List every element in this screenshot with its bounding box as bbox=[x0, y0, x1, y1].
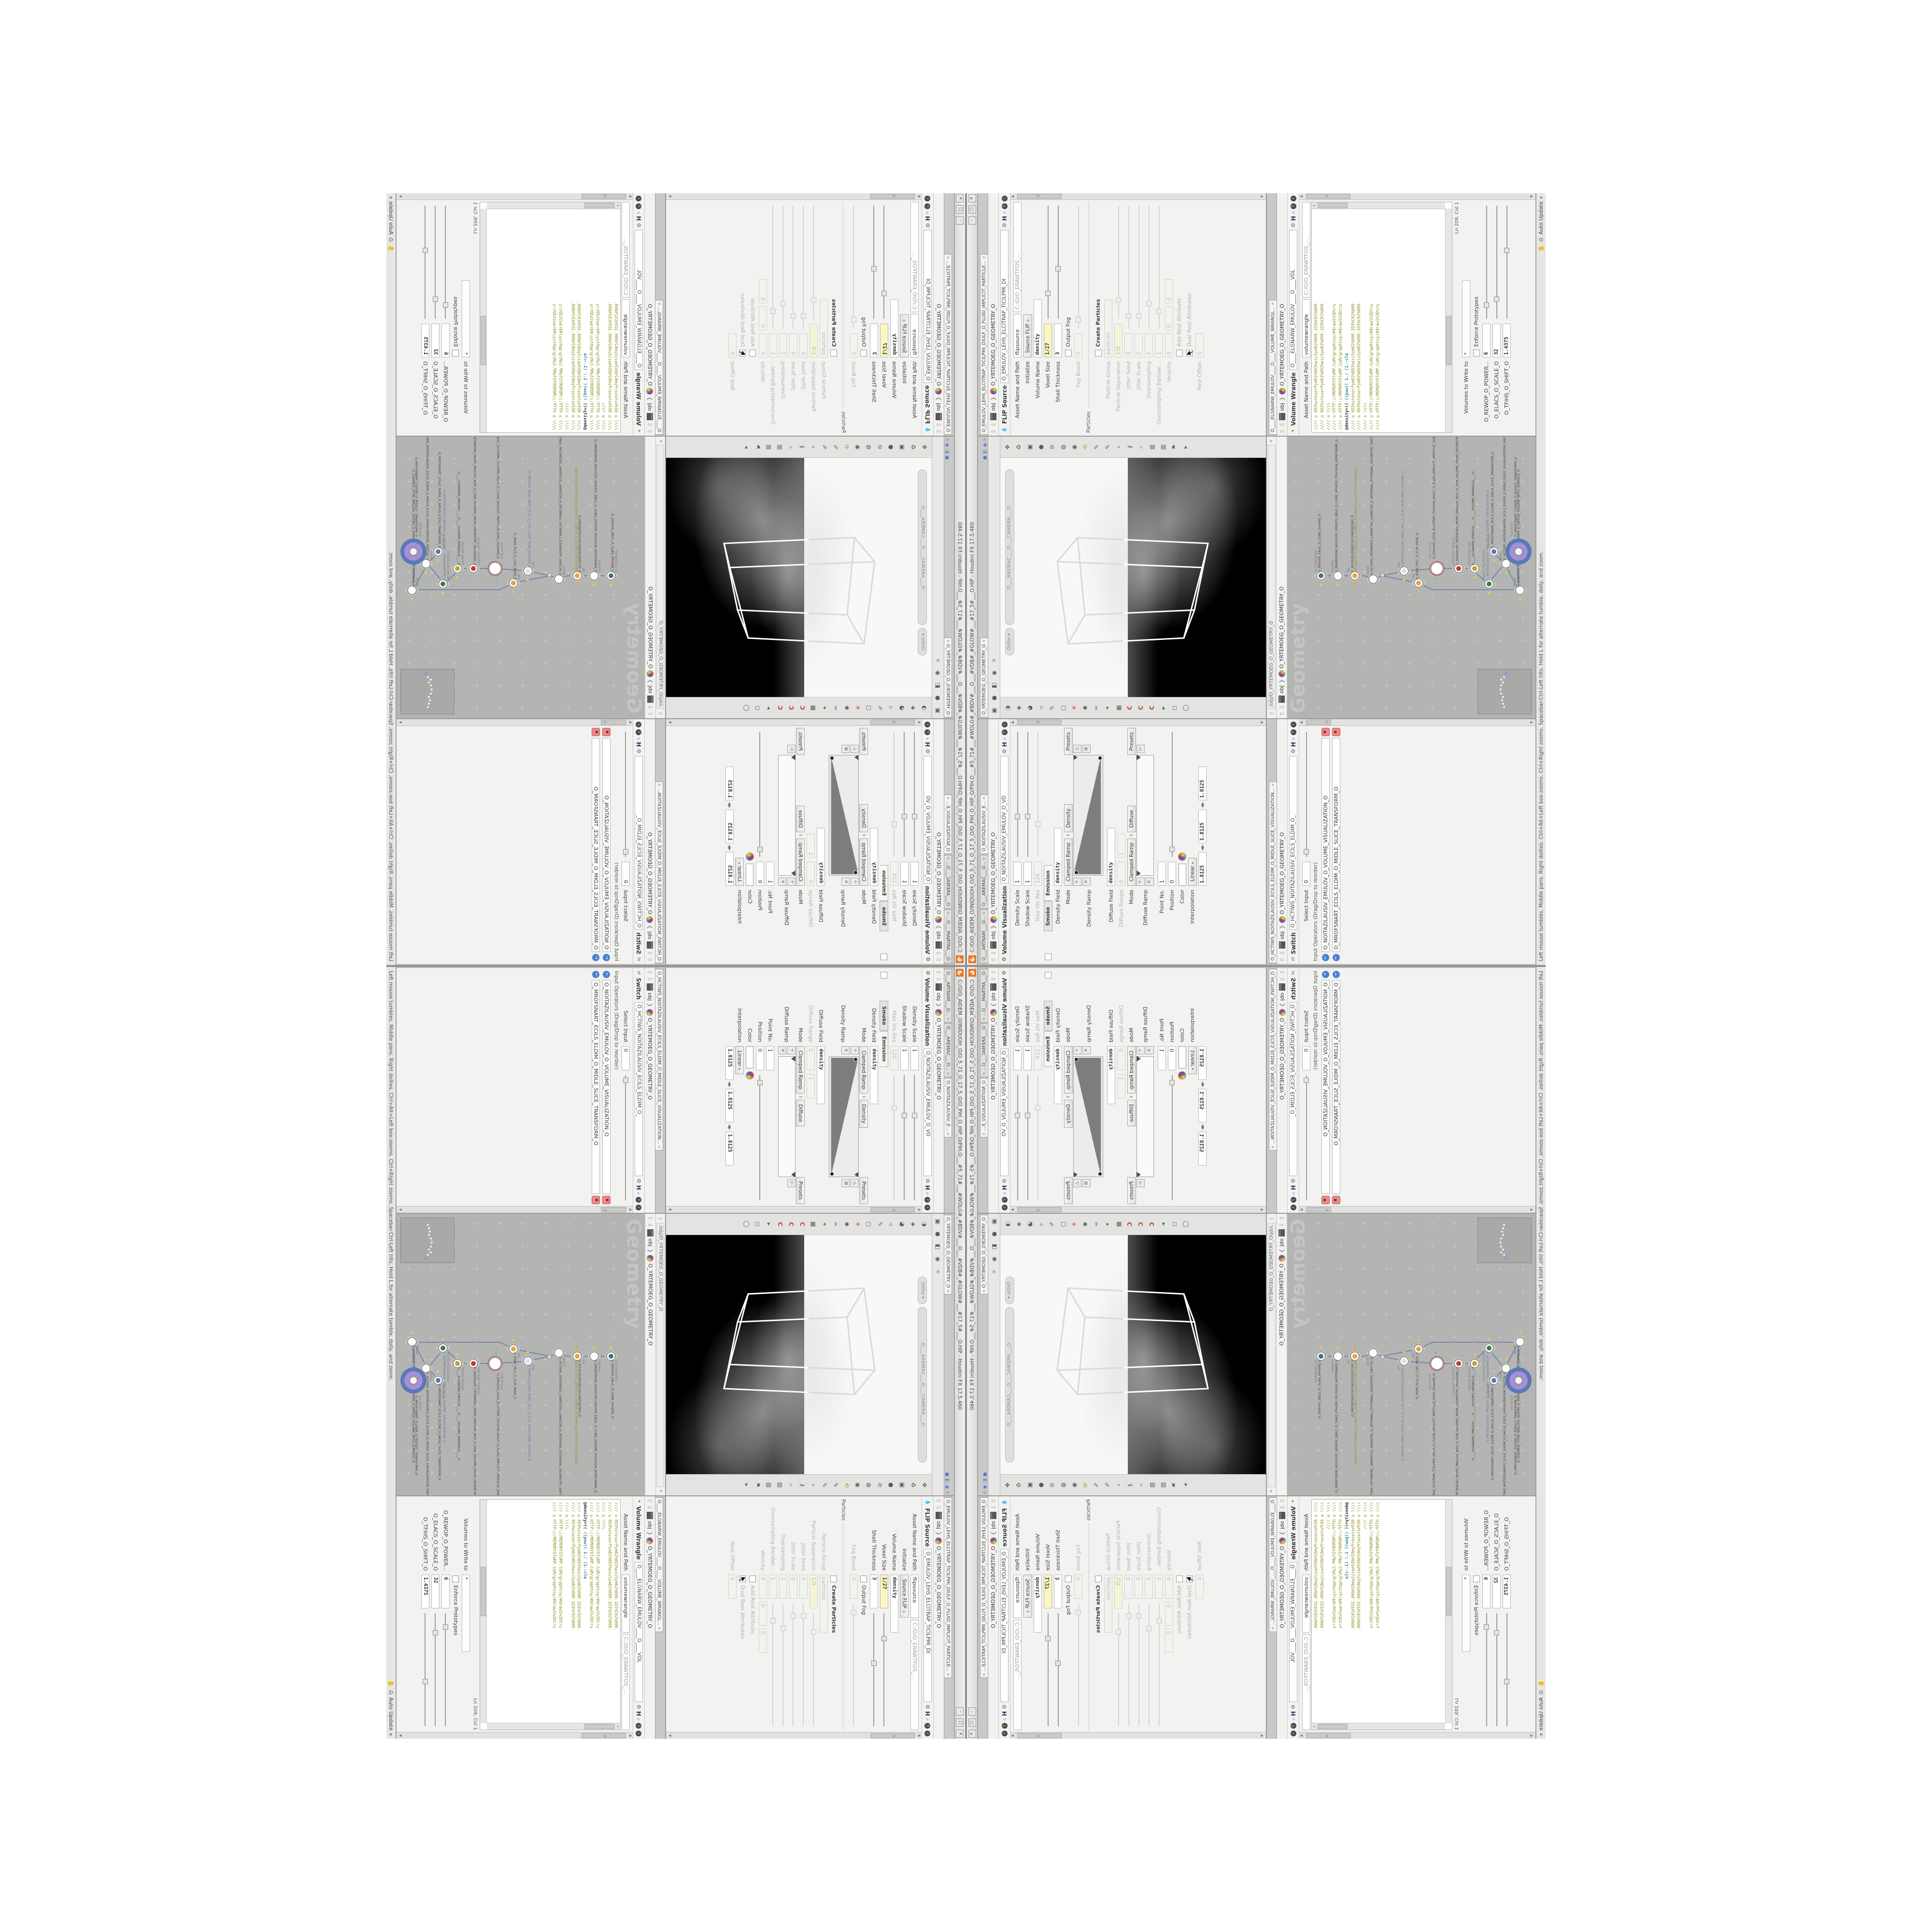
houdini-help-icon[interactable]: H bbox=[1001, 1711, 1008, 1716]
colorwheel-picker-icon[interactable] bbox=[746, 852, 754, 861]
node-result-transform-display[interactable] bbox=[1506, 539, 1532, 565]
close-icon[interactable]: ✕ bbox=[946, 1072, 950, 1075]
nav-up-icon[interactable]: ⇧ bbox=[1268, 1216, 1275, 1221]
nav-back-icon[interactable]: ⇩ bbox=[1279, 977, 1286, 981]
houdini-help-icon[interactable]: H bbox=[636, 1185, 642, 1190]
close-icon[interactable]: ✕ bbox=[946, 796, 950, 800]
close-icon[interactable]: ✕ bbox=[982, 796, 986, 800]
chevron-down-icon[interactable]: ▾ bbox=[388, 196, 395, 199]
param-field[interactable]: 1/27 bbox=[1044, 1575, 1052, 1608]
help-icon[interactable]: ? bbox=[636, 1197, 642, 1203]
param-slider[interactable] bbox=[1115, 1613, 1122, 1726]
toolbar-icon[interactable]: ⚑ bbox=[1170, 1480, 1179, 1490]
param-field[interactable]: density bbox=[870, 828, 878, 886]
close-icon[interactable]: ✕ bbox=[982, 256, 986, 259]
network-canvas[interactable]: Geometry +++++++++++++++++++++++++++++++… bbox=[1287, 437, 1535, 718]
node-name-field[interactable]: O_HCTIWS_NOITAZILAUSIV_ECILS_ELDIM_O_ bbox=[635, 1002, 643, 1176]
code-vscrollbar[interactable]: ▲ bbox=[1312, 1723, 1445, 1730]
close-icon[interactable]: ✕ bbox=[1271, 302, 1275, 305]
tab-visualization[interactable]: O_NOITAZILAUSIV_E...✕ bbox=[944, 1078, 952, 1137]
node-flag[interactable] bbox=[1493, 1370, 1495, 1373]
gear-icon[interactable]: ⚙ bbox=[924, 1705, 931, 1709]
param-slider[interactable] bbox=[1483, 206, 1490, 319]
param-slider[interactable] bbox=[1504, 1613, 1510, 1726]
viewport[interactable]: ◑◈◕◃✎▢✳✺✂✦▦CCC▸◻◯ ✥♻▣●⊘◍◉⟲✎✎∘⚷⌕▥▥⚑▸ bbox=[666, 437, 932, 718]
param-field[interactable]: 32 bbox=[1492, 1575, 1501, 1608]
nav-back-icon[interactable]: ⇩ bbox=[936, 1505, 942, 1510]
checkbox-add-rest[interactable] bbox=[1176, 1576, 1183, 1582]
param-slider[interactable] bbox=[1493, 206, 1500, 319]
param-slider[interactable] bbox=[1115, 206, 1122, 319]
close-button[interactable]: ✕ bbox=[956, 194, 964, 202]
breadcrumb-network[interactable]: O_YRTEMOEG_O_GEOMETRY_O bbox=[990, 832, 996, 914]
toolbar-icon[interactable]: ∘ bbox=[1114, 1480, 1123, 1490]
param-field[interactable]: 0 bbox=[1165, 1602, 1173, 1626]
node-flag[interactable] bbox=[1474, 576, 1476, 579]
ramp-expand-button[interactable]: ⊞ bbox=[841, 1179, 850, 1187]
toolbar-icon[interactable]: ✥ bbox=[920, 1480, 929, 1490]
param-field[interactable]: 1 bbox=[766, 1046, 774, 1070]
delete-input-icon[interactable]: ✖ bbox=[592, 728, 600, 736]
close-icon[interactable]: ✕ bbox=[982, 911, 986, 915]
param-slider[interactable] bbox=[891, 1075, 898, 1200]
toolbar-icon[interactable]: ⚷ bbox=[798, 1480, 807, 1490]
tab-switch[interactable]: O_HCTIWS_NOITAZILAUSIV_ECILS_ELDIM_O_MID… bbox=[1269, 969, 1277, 1151]
toolbar-icon[interactable]: ● bbox=[934, 693, 942, 703]
node-volume-visualization[interactable] bbox=[438, 579, 448, 589]
maximize-button[interactable]: □ bbox=[956, 1719, 964, 1727]
nav-back-icon[interactable]: ⇩ bbox=[990, 422, 997, 427]
info-icon[interactable]: i bbox=[636, 196, 642, 201]
param-field[interactable]: 0 bbox=[756, 1046, 764, 1070]
nav-up-icon[interactable]: ⇧ bbox=[1268, 711, 1275, 716]
toolbar-icon[interactable]: ⚑ bbox=[1170, 442, 1179, 452]
camera-menu[interactable]: O___AREMAC___O___CAMERA___O bbox=[918, 1307, 927, 1463]
node-flag[interactable] bbox=[424, 1393, 426, 1396]
presets-button[interactable]: Presets bbox=[1127, 728, 1136, 755]
houdini-help-icon[interactable]: H bbox=[636, 1711, 642, 1716]
node-name-field[interactable]: O_EMULOV_LEHS_ELCITRAP_TICILPMI_DI bbox=[1000, 230, 1009, 383]
auto-update-button[interactable]: Auto Update bbox=[388, 1697, 394, 1731]
param-field[interactable]: 0 bbox=[1302, 1046, 1310, 1070]
presets-button[interactable]: Presets bbox=[860, 728, 868, 755]
info-icon[interactable]: i bbox=[1291, 196, 1296, 201]
toolbar-icon[interactable]: ✎ bbox=[1092, 1480, 1101, 1490]
node-vdb-from-polygons[interactable] bbox=[469, 564, 478, 573]
gear-icon[interactable]: ⚙ bbox=[924, 749, 931, 753]
ramp-delete-button[interactable]: ✕ bbox=[841, 878, 850, 886]
density-ramp[interactable] bbox=[1073, 1056, 1103, 1177]
scrollbar[interactable]: ▲▼ bbox=[397, 1206, 633, 1213]
toolbar-icon[interactable]: C bbox=[798, 703, 807, 713]
toolbar-icon[interactable]: ◈ bbox=[909, 1220, 918, 1229]
param-slider[interactable] bbox=[1045, 206, 1051, 319]
param-slider[interactable] bbox=[432, 206, 439, 319]
render-area[interactable]: Ortho ▾ O___AREMAC___O___CAMERA___O bbox=[1000, 458, 1266, 697]
toolbar-icon[interactable]: ▥ bbox=[1148, 442, 1156, 452]
pin-icon[interactable]: ⍟ bbox=[658, 440, 663, 442]
param-slider[interactable] bbox=[1024, 1075, 1031, 1200]
param-field[interactable]: density bbox=[1054, 828, 1062, 886]
toolbar-icon[interactable]: ✺ bbox=[1081, 1220, 1090, 1229]
scrollbar[interactable]: ▲▼ bbox=[397, 719, 633, 726]
chevron-down-icon[interactable]: ▾ bbox=[1538, 1733, 1545, 1736]
ramp-expand-button[interactable]: ⊞ bbox=[1082, 1179, 1091, 1187]
info-icon[interactable]: i bbox=[1291, 722, 1296, 727]
param-slider[interactable] bbox=[422, 206, 429, 319]
camera-menu[interactable]: O___AREMAC___O___CAMERA___O bbox=[1005, 1307, 1014, 1463]
node-name-field[interactable]: O_HCTIWS_NOITAZILAUSIV_ECILS_ELDIM_O_ bbox=[1289, 1002, 1297, 1176]
gear-icon[interactable]: ⚙ bbox=[636, 749, 642, 753]
node-flag[interactable] bbox=[1458, 576, 1460, 579]
node-transform-slice[interactable] bbox=[1489, 547, 1499, 556]
node-flag[interactable] bbox=[576, 1346, 578, 1349]
toolbar-icon[interactable]: ◧ bbox=[934, 681, 942, 690]
toolbar-icon[interactable]: ⟲ bbox=[1081, 442, 1090, 452]
param-slider[interactable] bbox=[1156, 1604, 1163, 1726]
breadcrumb-root[interactable]: obj bbox=[936, 1521, 942, 1529]
param-slider[interactable] bbox=[881, 206, 888, 319]
param-field[interactable]: 0 bbox=[1124, 333, 1133, 357]
field-menu[interactable]: Diffuse bbox=[796, 806, 805, 832]
breadcrumb-network[interactable]: O_YRTEMOEG_O_GEOMETRY_O bbox=[990, 304, 996, 386]
input-arrow-icon[interactable]: ← bbox=[1333, 971, 1340, 978]
close-icon[interactable]: ✕ bbox=[982, 1017, 986, 1021]
node-flag[interactable] bbox=[1403, 579, 1406, 581]
camera-menu[interactable]: O___AREMAC___O___CAMERA___O bbox=[918, 469, 927, 625]
asset-name-field[interactable]: flipsource bbox=[1013, 1575, 1022, 1618]
volumes-field[interactable]: * bbox=[462, 280, 470, 357]
param-field[interactable]: 1 bbox=[769, 333, 777, 357]
toolbar-icon[interactable]: ▸ bbox=[765, 703, 773, 713]
param-field[interactable]: 1 bbox=[910, 1046, 919, 1070]
param-field[interactable]: 0 bbox=[759, 279, 767, 303]
param-field[interactable]: 0 bbox=[1168, 1046, 1176, 1070]
nav-back-icon[interactable]: ⇩ bbox=[990, 951, 997, 955]
toolbar-icon[interactable]: ✥ bbox=[1003, 442, 1012, 452]
presets-button[interactable]: Presets bbox=[1127, 1177, 1136, 1204]
checkbox[interactable] bbox=[881, 953, 888, 960]
chevron-down-icon[interactable]: ▾ bbox=[1538, 196, 1545, 199]
node-flag[interactable] bbox=[593, 1346, 595, 1349]
ramp-value-field[interactable]: 1.8125 bbox=[725, 767, 734, 800]
toolbar-icon[interactable]: ✎ bbox=[876, 703, 884, 713]
scrollbar[interactable]: ▲▼ bbox=[1010, 1206, 1266, 1213]
pin-icon[interactable]: ⍟ bbox=[982, 1491, 988, 1494]
param-field[interactable]: 1/27 bbox=[1044, 324, 1052, 357]
toolbar-icon[interactable]: ⊘ bbox=[876, 442, 884, 452]
param-field[interactable]: 0 bbox=[1135, 333, 1143, 357]
subtab-smoke[interactable]: Smoke bbox=[1044, 1001, 1052, 1031]
toolbar-icon[interactable]: ✂ bbox=[1092, 703, 1101, 713]
toolbar-icon[interactable]: ▥ bbox=[776, 1480, 784, 1490]
ramp-add-button[interactable]: ＋ bbox=[1136, 1046, 1145, 1054]
gear-icon[interactable]: ⚙ bbox=[1290, 1705, 1296, 1709]
scrollbar[interactable]: ▲▼ bbox=[1010, 193, 1266, 200]
network-canvas[interactable]: Geometry +++++++++++++++++++++++++++++++… bbox=[397, 437, 645, 718]
presets-button[interactable]: Presets bbox=[1064, 1177, 1073, 1204]
checkbox-enforce-prototypes[interactable] bbox=[453, 1576, 459, 1582]
node-name-field[interactable]: O_HCTIWS_NOITAZILAUSIV_ECILS_ELDIM_O_ bbox=[1289, 756, 1297, 930]
toolbar-icon[interactable]: C bbox=[787, 703, 796, 713]
param-field[interactable]: density bbox=[1107, 1046, 1115, 1104]
tab-mantra[interactable]: O___ARTNAM___O...✕ bbox=[980, 909, 988, 963]
help-icon[interactable]: ? bbox=[1291, 1723, 1296, 1729]
info-icon[interactable]: i bbox=[925, 1205, 931, 1210]
network-minimap[interactable] bbox=[1477, 1218, 1532, 1263]
search-icon[interactable]: ⌕ bbox=[924, 211, 931, 214]
param-slider[interactable] bbox=[1075, 1604, 1082, 1726]
param-field[interactable]: 1 bbox=[1013, 1046, 1022, 1070]
param-slider[interactable] bbox=[1483, 1613, 1490, 1726]
param-field[interactable]: 1 bbox=[1158, 862, 1166, 886]
toolbar-icon[interactable]: ▢ bbox=[1059, 1220, 1067, 1229]
toolbar-icon[interactable]: ▣ bbox=[1025, 442, 1034, 452]
param-field[interactable]: 0 bbox=[1124, 1575, 1133, 1599]
search-icon[interactable]: ⌕ bbox=[924, 737, 931, 740]
toolbar-icon[interactable]: ▣ bbox=[934, 706, 942, 715]
gear-icon[interactable]: ⚙ bbox=[636, 1179, 642, 1183]
toolbar-icon[interactable]: ◍ bbox=[865, 442, 873, 452]
toolbar-icon[interactable]: ▥ bbox=[776, 442, 784, 452]
node-vdb-from-polygons[interactable] bbox=[1454, 564, 1463, 573]
subtab-emission[interactable]: Emission bbox=[880, 1031, 889, 1067]
param-field[interactable]: 1 bbox=[807, 834, 815, 858]
param-slider[interactable] bbox=[1146, 206, 1152, 328]
update-mode-icon[interactable]: ♻ bbox=[1538, 237, 1545, 242]
toolbar-icon[interactable]: ∘ bbox=[1114, 442, 1123, 452]
help-icon[interactable]: ? bbox=[1002, 1197, 1008, 1203]
param-slider[interactable] bbox=[1303, 1075, 1310, 1200]
param-field[interactable]: 0 bbox=[789, 333, 797, 357]
search-icon[interactable]: ⌕ bbox=[1001, 1718, 1008, 1721]
pane-split-icon[interactable]: ◧ bbox=[982, 1478, 988, 1483]
param-slider[interactable] bbox=[851, 206, 857, 328]
search-icon[interactable]: ⌕ bbox=[636, 1718, 642, 1721]
param-field[interactable]: 128 bbox=[1034, 1046, 1042, 1070]
breadcrumb-root[interactable]: obj bbox=[1279, 931, 1285, 939]
close-icon[interactable]: ✕ bbox=[1271, 1145, 1275, 1149]
param-field[interactable]: 0 bbox=[799, 333, 808, 357]
wire-junction-dot[interactable] bbox=[1380, 1355, 1385, 1359]
node-flag[interactable] bbox=[576, 583, 578, 586]
toolbar-icon[interactable]: ◑ bbox=[1003, 703, 1012, 713]
ramp-marker-button[interactable]: ▷ bbox=[787, 745, 796, 753]
search-icon[interactable]: ⌕ bbox=[636, 737, 642, 740]
presets-button[interactable]: Presets bbox=[796, 1177, 805, 1204]
toolbar-icon[interactable]: ✦ bbox=[820, 1220, 829, 1229]
nav-back-icon[interactable]: ⇩ bbox=[647, 422, 653, 427]
node-flip-source[interactable] bbox=[488, 1356, 502, 1371]
search-icon[interactable]: ⌕ bbox=[1001, 211, 1008, 214]
param-field[interactable]: 6 bbox=[441, 324, 450, 357]
node-flag[interactable] bbox=[1403, 1351, 1406, 1353]
param-field[interactable]: density bbox=[1034, 1575, 1042, 1633]
param-field[interactable]: 2 bbox=[1145, 333, 1153, 357]
param-field[interactable]: 0 bbox=[799, 1575, 808, 1599]
info-icon[interactable]: i bbox=[636, 722, 642, 727]
info-icon[interactable]: i bbox=[636, 1205, 642, 1210]
asset-path-field[interactable]: C:/O/O_ERAWTFOS_... bbox=[910, 202, 919, 312]
info-icon[interactable]: i bbox=[1291, 1205, 1296, 1210]
toolbar-icon[interactable]: ✳ bbox=[853, 703, 862, 713]
toolbar-icon[interactable]: ✎ bbox=[876, 1220, 884, 1229]
toolbar-icon[interactable]: ▦ bbox=[809, 703, 818, 713]
param-field[interactable]: 0 bbox=[1135, 1575, 1143, 1599]
minimize-button[interactable]: – bbox=[968, 1707, 976, 1716]
render-area[interactable]: Ortho ▾ O___AREMAC___O___CAMERA___O bbox=[666, 458, 932, 697]
toolbar-icon[interactable]: ▣ bbox=[898, 1480, 907, 1490]
toolbar-icon[interactable]: ⍟ bbox=[990, 1267, 998, 1277]
search-icon[interactable]: ⌕ bbox=[1290, 1718, 1297, 1721]
toolbar-icon[interactable]: ◈ bbox=[909, 703, 918, 713]
nav-up-icon[interactable]: ⇧ bbox=[990, 429, 997, 434]
info-icon[interactable]: i bbox=[925, 1731, 931, 1736]
param-field[interactable]: 0 bbox=[728, 333, 737, 357]
pin-icon[interactable]: ⍟ bbox=[944, 1491, 950, 1494]
search-icon[interactable]: ⌕ bbox=[924, 1192, 931, 1195]
toolbar-icon[interactable]: ⟲ bbox=[1081, 1480, 1090, 1490]
breadcrumb-network[interactable]: O_YRTEMOEG_O_GEOMETRY_O bbox=[647, 1018, 653, 1100]
info-icon[interactable]: i bbox=[1291, 1731, 1296, 1736]
node-flag[interactable] bbox=[1337, 583, 1339, 586]
wire-junction-dot[interactable] bbox=[1380, 573, 1385, 577]
vex-snippet-editor[interactable]: //// ◎ 0D3%steserPym62%0D3%eziSym62%000.… bbox=[1311, 202, 1452, 433]
param-field[interactable]: density bbox=[890, 299, 898, 357]
subtab-smoke[interactable]: Smoke bbox=[880, 1001, 889, 1031]
node-flag[interactable] bbox=[456, 576, 458, 579]
toolbar-icon[interactable]: C bbox=[787, 1220, 796, 1229]
toolbar-icon[interactable]: ▣ bbox=[934, 1217, 942, 1226]
toolbar-icon[interactable]: ◉ bbox=[934, 668, 942, 678]
houdini-help-icon[interactable]: H bbox=[1001, 1185, 1008, 1190]
param-field[interactable]: 0 bbox=[1165, 333, 1173, 357]
tab-scene-view[interactable]: O_YRTEMOEG_O_GEOMETRY_O✕ bbox=[980, 638, 988, 717]
node-flag[interactable] bbox=[425, 571, 427, 574]
breadcrumb-network[interactable]: O_YRTEMOEG_O_GEOMETRY_O bbox=[1279, 586, 1285, 668]
nav-back-icon[interactable]: ⇩ bbox=[936, 977, 942, 981]
node-cube-sphere[interactable] bbox=[1316, 571, 1326, 581]
toolbar-icon[interactable]: ◃ bbox=[1037, 1220, 1045, 1229]
wire-junction-dot[interactable] bbox=[547, 573, 552, 577]
toolbar-icon[interactable]: ◯ bbox=[1181, 1220, 1190, 1229]
breadcrumb-network[interactable]: O_YRTEMOEG_O_GEOMETRY_O bbox=[647, 1264, 653, 1346]
tab-mantra[interactable]: O___ARTNAM___O...✕ bbox=[944, 969, 952, 1023]
node-flag[interactable] bbox=[1488, 1338, 1491, 1340]
toolbar-icon[interactable]: ⚷ bbox=[798, 442, 807, 452]
param-slider[interactable] bbox=[1014, 732, 1021, 857]
param-slider[interactable] bbox=[1169, 1075, 1176, 1200]
close-icon[interactable]: ✕ bbox=[946, 1290, 950, 1293]
toolbar-icon[interactable]: ▣ bbox=[1025, 1480, 1034, 1490]
nav-back-icon[interactable]: ⇩ bbox=[1279, 705, 1285, 710]
toolbar-icon[interactable]: ✳ bbox=[1070, 703, 1079, 713]
checkbox-add-rest[interactable] bbox=[750, 350, 756, 356]
breadcrumb-network[interactable]: O_YRTEMOEG_O_GEOMETRY_O bbox=[647, 586, 653, 668]
ramp-value-field[interactable]: 1.8125 bbox=[1198, 1132, 1207, 1165]
info-icon[interactable]: i bbox=[925, 196, 931, 201]
breadcrumb-root[interactable]: obj bbox=[1279, 1521, 1285, 1529]
minimize-button[interactable]: – bbox=[956, 216, 964, 225]
toolbar-icon[interactable]: ◉ bbox=[1070, 442, 1079, 452]
chevron-down-icon[interactable]: ▾ bbox=[388, 1733, 395, 1736]
interpolation-menu[interactable]: Linear ▾ bbox=[736, 858, 744, 886]
delete-input-icon[interactable]: ✖ bbox=[1321, 728, 1330, 736]
toolbar-icon[interactable]: ● bbox=[990, 1229, 998, 1239]
node-flag[interactable] bbox=[1505, 571, 1507, 574]
pane-split-icon[interactable]: ◧ bbox=[944, 449, 950, 454]
scrollbar[interactable]: ▲▼ bbox=[397, 1732, 633, 1739]
info-icon[interactable]: i bbox=[1002, 196, 1008, 201]
toolbar-icon[interactable]: C bbox=[1125, 703, 1134, 713]
node-flag[interactable] bbox=[1435, 1352, 1437, 1354]
houdini-help-icon[interactable]: H bbox=[924, 216, 931, 221]
param-slider[interactable] bbox=[1125, 1604, 1132, 1726]
node-name-field[interactable]: O_EMULOV_LEHS_ELCITRAP_TICILPMI_DI bbox=[923, 1549, 932, 1702]
tab-switch[interactable]: O_HCTIWS_NOITAZILAUSIV_ECILS_ELDIM_O_MID… bbox=[655, 969, 663, 1151]
subtab-smoke[interactable]: Smoke bbox=[880, 901, 889, 931]
param-field[interactable]: 32 bbox=[1492, 324, 1501, 357]
color-swatch[interactable] bbox=[1179, 864, 1186, 886]
houdini-help-icon[interactable]: H bbox=[636, 742, 642, 747]
checkbox-output-fog[interactable] bbox=[861, 1576, 867, 1582]
toolbar-icon[interactable]: ◍ bbox=[1059, 442, 1067, 452]
toolbar-icon[interactable]: ◈ bbox=[1014, 703, 1023, 713]
toolbar-icon[interactable]: C bbox=[798, 1220, 807, 1229]
param-field[interactable]: 128 bbox=[1034, 862, 1042, 886]
toolbar-icon[interactable]: ✂ bbox=[1092, 1220, 1101, 1229]
mode-menu[interactable]: Clamped Ramp bbox=[796, 1046, 805, 1094]
network-minimap[interactable] bbox=[400, 669, 455, 714]
asset-name-field[interactable]: flipsource bbox=[1013, 314, 1022, 357]
toolbar-icon[interactable]: ✥ bbox=[920, 442, 929, 452]
param-slider[interactable] bbox=[770, 1604, 777, 1726]
subtab-emission[interactable]: Emission bbox=[880, 865, 889, 901]
help-icon[interactable]: ? bbox=[1002, 203, 1008, 209]
param-field[interactable]: density bbox=[870, 1046, 878, 1104]
nav-back-icon[interactable]: ⇩ bbox=[647, 977, 653, 981]
checkbox-enforce-prototypes[interactable] bbox=[1473, 1576, 1480, 1582]
gear-icon[interactable]: ⚙ bbox=[1001, 223, 1008, 227]
breadcrumb-root[interactable]: obj bbox=[990, 1521, 996, 1529]
node-name-field[interactable]: O____ELGNARW_EMULOV____O____VOL bbox=[1289, 1562, 1297, 1702]
asset-path-field[interactable]: C:/O/O_ERAWTFOS_... bbox=[622, 202, 630, 298]
nav-back-icon[interactable]: ⇩ bbox=[647, 1222, 654, 1227]
param-field[interactable]: density bbox=[1034, 299, 1042, 357]
toolbar-icon[interactable]: ✥ bbox=[1003, 1480, 1012, 1490]
vex-snippet-editor[interactable]: //// ◎ 0D3%steserPym62%0D3%eziSym62%000.… bbox=[480, 1499, 621, 1730]
close-button[interactable]: ✕ bbox=[956, 1730, 964, 1738]
toolbar-icon[interactable]: ▸ bbox=[1159, 1220, 1167, 1229]
toolbar-icon[interactable]: ● bbox=[990, 693, 998, 703]
toolbar-icon[interactable]: ◯ bbox=[742, 703, 751, 713]
wire-junction-dot[interactable] bbox=[547, 1355, 552, 1359]
nav-back-icon[interactable]: ⇩ bbox=[647, 705, 654, 710]
ramp-delete-button[interactable]: ✕ bbox=[778, 1046, 786, 1054]
toolbar-icon[interactable]: ▥ bbox=[765, 442, 773, 452]
houdini-help-icon[interactable]: H bbox=[1001, 216, 1008, 221]
breadcrumb-root[interactable]: obj bbox=[647, 1238, 653, 1247]
toolbar-icon[interactable]: ◃ bbox=[887, 703, 895, 713]
node-name-field[interactable]: O_EMULOV_LEHS_ELCITRAP_TICILPMI_DI bbox=[1000, 1549, 1009, 1702]
param-field[interactable]: density bbox=[890, 1575, 898, 1633]
close-icon[interactable]: ✕ bbox=[946, 857, 950, 860]
toolbar-icon[interactable]: C bbox=[776, 703, 784, 713]
param-field[interactable]: 1 bbox=[807, 1074, 815, 1098]
toolbar-icon[interactable]: ✦ bbox=[1103, 1220, 1112, 1229]
nav-up-icon[interactable]: ⇧ bbox=[990, 957, 997, 962]
node-flag[interactable] bbox=[610, 583, 612, 586]
